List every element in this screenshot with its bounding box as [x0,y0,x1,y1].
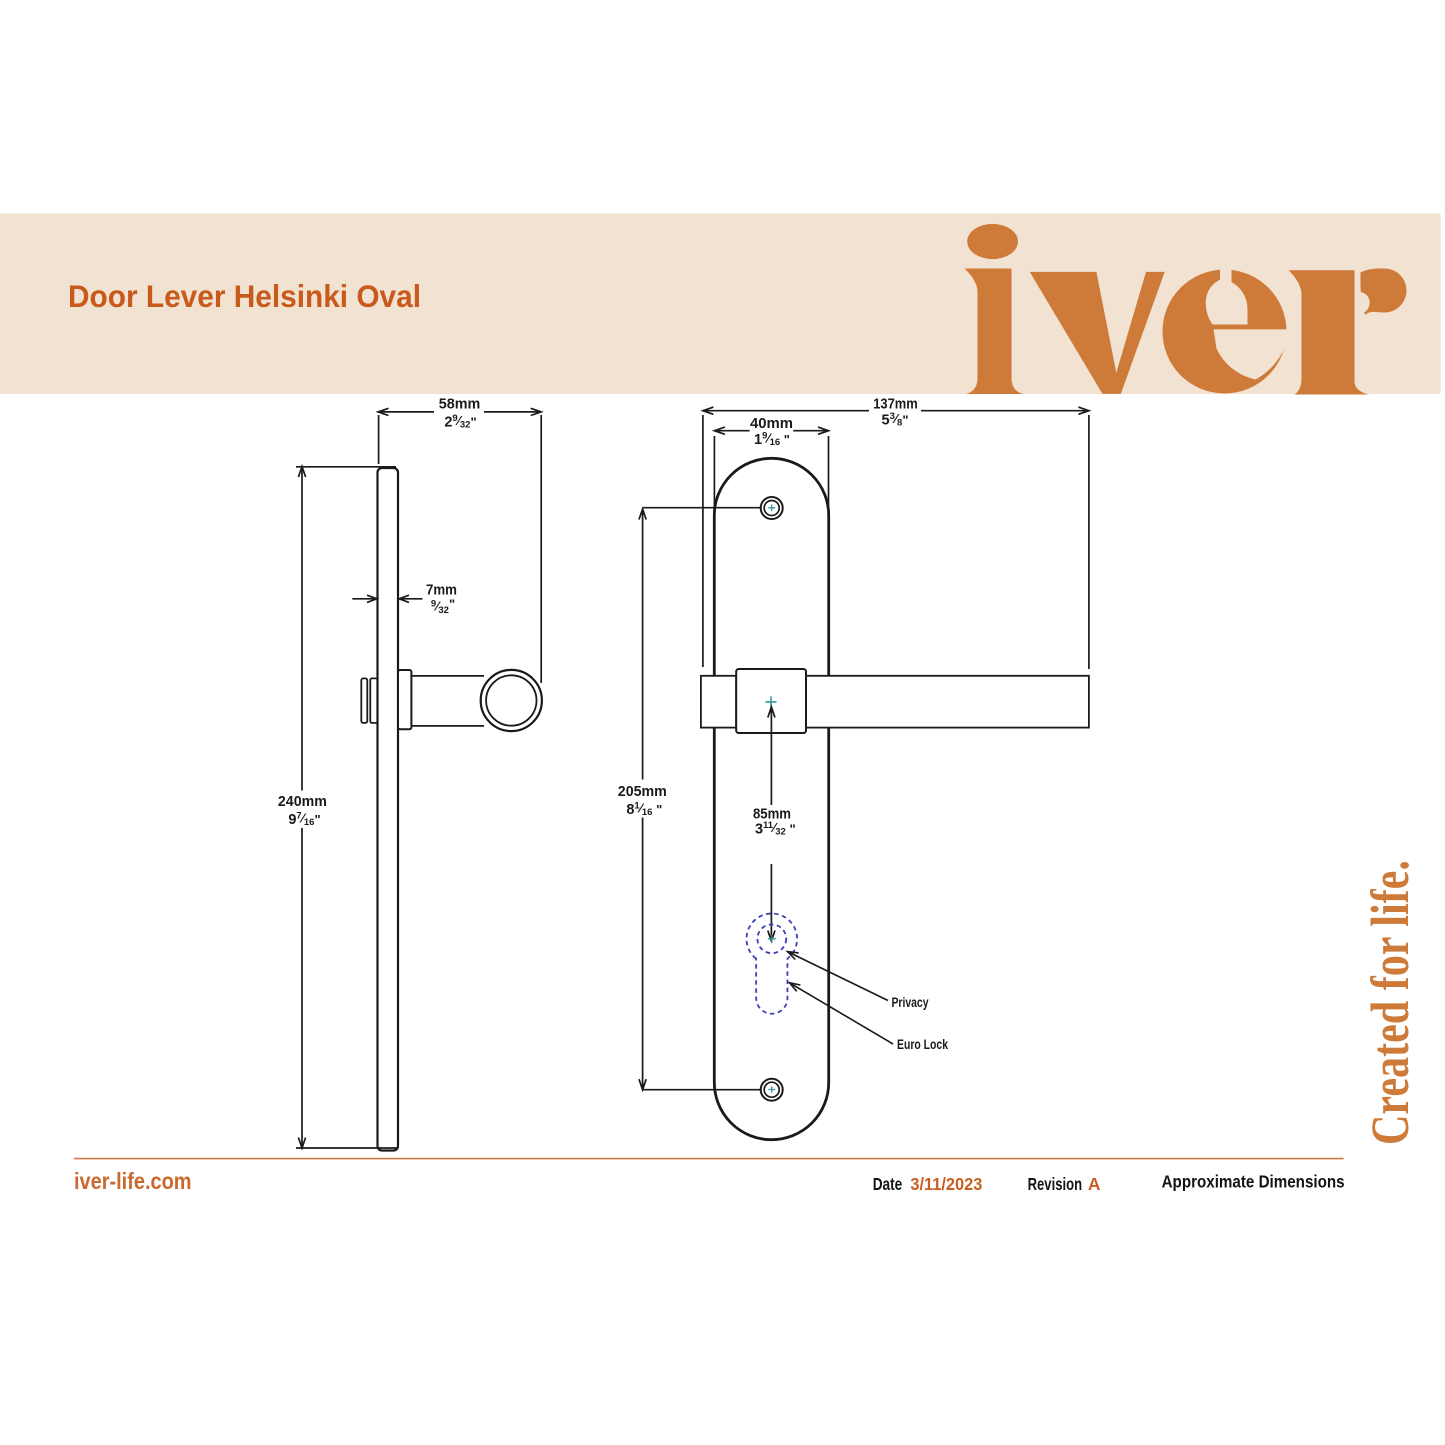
svg-text:205mm: 205mm [618,784,667,800]
svg-text:iver-life.com: iver-life.com [74,1168,192,1194]
svg-text:Revision: Revision [1028,1174,1083,1194]
svg-text:19⁄16 ": 19⁄16 " [754,431,790,449]
svg-text:81⁄16 ": 81⁄16 " [626,801,662,819]
svg-text:3/11/2023: 3/11/2023 [910,1174,982,1194]
svg-text:97⁄16": 97⁄16" [288,811,320,829]
svg-text:Created for life.: Created for life. [1361,860,1420,1145]
svg-text:Date: Date [873,1174,903,1194]
svg-text:A: A [1088,1174,1101,1194]
svg-text:Privacy: Privacy [892,995,929,1010]
svg-text:29⁄32": 29⁄32" [444,413,476,431]
svg-text:40mm: 40mm [750,416,793,432]
svg-text:53⁄8": 53⁄8" [881,411,908,429]
svg-text:58mm: 58mm [439,397,481,413]
svg-text:9⁄32": 9⁄32" [431,597,455,617]
svg-text:Euro Lock: Euro Lock [897,1037,948,1052]
svg-text:240mm: 240mm [278,794,327,810]
svg-text:Approximate Dimensions: Approximate Dimensions [1162,1172,1345,1192]
svg-text:Door Lever Helsinki Oval: Door Lever Helsinki Oval [68,278,421,314]
